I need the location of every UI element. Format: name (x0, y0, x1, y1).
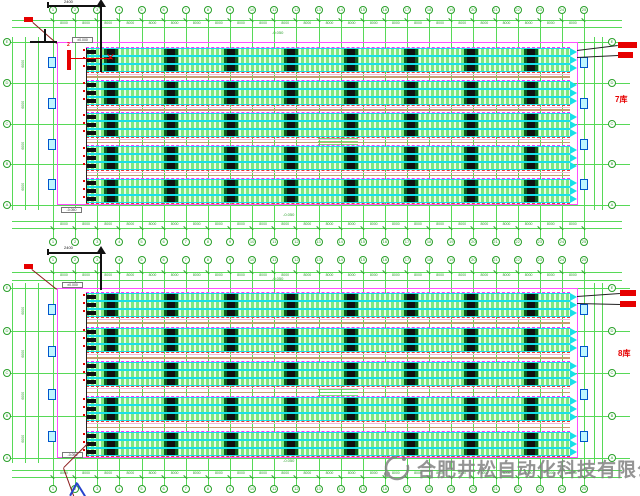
rack-cluster (467, 147, 475, 153)
rack-end-dot (83, 363, 85, 365)
rack-end-dot (83, 163, 85, 165)
rack-cluster (347, 310, 355, 316)
grid-col-bubble: 13 (315, 256, 323, 264)
grid-col-bubble: 16 (381, 256, 389, 264)
dim-tick (592, 83, 606, 84)
rack-cluster (287, 337, 295, 343)
grid-col-bubble: 10 (248, 256, 256, 264)
grid-col-bubble: 24 (558, 256, 566, 264)
dim-tick (592, 288, 606, 289)
rack-cluster (227, 302, 235, 308)
rack-end-plate (87, 442, 96, 446)
door-opening (580, 304, 588, 315)
dim-tick (12, 458, 42, 459)
rack-end-guide (570, 448, 577, 456)
dim-bay-label: 8000 (254, 22, 272, 26)
rack-cluster (527, 196, 535, 202)
rack-cluster (407, 406, 415, 412)
corner-mark (44, 29, 46, 42)
dim-bay-label: 8000 (188, 274, 206, 278)
rack-cluster (527, 414, 535, 420)
rack-dash-magenta (86, 112, 570, 113)
grid-col-bubble: 22 (514, 6, 522, 14)
dim-bay-label: 8000 (210, 274, 228, 278)
dim-bay-label: 8000 (409, 223, 427, 227)
dim-tick (12, 205, 42, 206)
dim-bay-label: 8000 (564, 274, 582, 278)
grid-row-bubble: B (3, 412, 11, 420)
rack-cluster (107, 449, 115, 455)
rack-cluster (527, 180, 535, 186)
dim-tick (12, 164, 42, 165)
dim-bay-label: 8000 (99, 223, 117, 227)
rack-cluster (467, 82, 475, 88)
grid-col-bubble: 10 (248, 6, 256, 14)
dim-bay-label: 8000 (121, 274, 139, 278)
rack-cluster (227, 196, 235, 202)
rack-cluster (227, 98, 235, 104)
dim-bay-label: 8000 (188, 223, 206, 227)
dim-tick (12, 124, 42, 125)
grid-row-bubble: C (3, 369, 11, 377)
rack-cluster (407, 371, 415, 377)
grid-col-bubble: 23 (536, 6, 544, 14)
grid-col-bubble: 15 (359, 6, 367, 14)
rack-cluster (287, 180, 295, 186)
rack-cluster (407, 441, 415, 447)
grid-row-bubble: A (3, 201, 11, 209)
rack-cluster (167, 302, 175, 308)
callout-red-block (618, 52, 633, 58)
dim-bay-label: 8000 (144, 22, 162, 26)
rack-cluster (287, 49, 295, 55)
rack-end-guide (570, 362, 577, 370)
grid-col-bubble: 4 (115, 256, 123, 264)
rack-cluster (227, 441, 235, 447)
rack-cluster (227, 337, 235, 343)
dim-bay-label: 8000 (298, 22, 316, 26)
building-wall (57, 42, 578, 205)
rack-cluster (287, 65, 295, 71)
rack-cluster (227, 363, 235, 369)
rack-cluster (467, 196, 475, 202)
grid-col-bubble: 5 (138, 485, 146, 493)
grid-col-bubble: 21 (492, 6, 500, 14)
grid-col-bubble: 14 (337, 238, 345, 246)
red-section-label: 2 (67, 43, 70, 48)
rack-cluster (467, 310, 475, 316)
rack-cluster (527, 449, 535, 455)
grid-col-bubble: 1 (49, 485, 57, 493)
rack-end-plate (87, 364, 96, 368)
rack-end-dot (83, 379, 85, 381)
rack-cluster (167, 49, 175, 55)
rack-end-dot (83, 147, 85, 149)
door-opening (48, 431, 56, 442)
dim-bay-label: 8000 (144, 274, 162, 278)
grid-col-bubble: 3 (93, 485, 101, 493)
dim-side-label: 6000 (22, 435, 26, 443)
rack-end-guide (570, 121, 577, 129)
rack-cluster (467, 180, 475, 186)
rack-cluster (527, 371, 535, 377)
rack-cluster (407, 196, 415, 202)
rack-cluster (287, 345, 295, 351)
rack-cluster (167, 65, 175, 71)
door-opening (580, 98, 588, 109)
rack-end-guide (570, 64, 577, 72)
grid-col-bubble: 22 (514, 485, 522, 493)
rack-cluster (347, 98, 355, 104)
dim-side-label: 6000 (22, 307, 26, 315)
grid-col-bubble: 17 (403, 485, 411, 493)
rack-end-guide (570, 328, 577, 336)
rack-cluster (167, 329, 175, 335)
rack-cluster (107, 406, 115, 412)
dim-bay-label: 8000 (321, 274, 339, 278)
rack-cluster (107, 345, 115, 351)
rack-cluster (167, 414, 175, 420)
dim-bay-label: 8000 (343, 472, 361, 476)
grid-col-bubble: 17 (403, 6, 411, 14)
rack-cluster (407, 188, 415, 194)
rack-cluster (167, 310, 175, 316)
dim-tick (12, 288, 42, 289)
rack-end-dot (83, 180, 85, 182)
grid-col-bubble: 8 (204, 485, 212, 493)
rack-cluster (167, 180, 175, 186)
dim-bay-label: 8000 (498, 274, 516, 278)
rack-dash-magenta (86, 396, 570, 397)
rack-cluster (167, 345, 175, 351)
rack-left-frame (86, 293, 87, 456)
rack-cluster (467, 345, 475, 351)
rack-cluster (527, 49, 535, 55)
rack-cluster (407, 82, 415, 88)
dim-bay-label: 8000 (298, 274, 316, 278)
rack-cluster (527, 122, 535, 128)
rack-cluster (407, 130, 415, 136)
dim-tick (592, 458, 606, 459)
rack-cluster (407, 433, 415, 439)
dim-tick (592, 124, 606, 125)
rack-end-plate (87, 311, 96, 315)
rack-end-dot (83, 398, 85, 400)
grid-col-bubble: 8 (204, 6, 212, 14)
rack-cluster (467, 433, 475, 439)
grid-col-bubble: 4 (115, 485, 123, 493)
callout-red-block (618, 42, 637, 48)
grid-col-bubble: 18 (425, 6, 433, 14)
dim-tick (592, 205, 606, 206)
rack-dash-magenta (86, 47, 570, 48)
rack-cluster (467, 49, 475, 55)
door-opening (580, 57, 588, 68)
grid-row-bubble: E (3, 38, 11, 46)
rack-end-dot (83, 441, 85, 443)
grid-col-bubble: 4 (115, 6, 123, 14)
door-opening (580, 179, 588, 190)
callout-red-block (620, 301, 636, 307)
rack-cluster (347, 130, 355, 136)
rack-end-dot (83, 98, 85, 100)
rack-cluster (287, 310, 295, 316)
grid-col-bubble: 14 (337, 6, 345, 14)
rack-cluster (467, 114, 475, 120)
grid-col-bubble: 11 (270, 485, 278, 493)
rack-cluster (227, 163, 235, 169)
aisle-text-block (318, 387, 358, 396)
door-opening (580, 389, 588, 400)
grid-col-bubble: 25 (580, 256, 588, 264)
rack-cluster (107, 196, 115, 202)
rack-cluster (527, 398, 535, 404)
dim-bay-label: 8000 (365, 274, 383, 278)
dim-bay-label: 8000 (276, 22, 294, 26)
dim-bay-label: 8000 (343, 274, 361, 278)
rack-cluster (347, 433, 355, 439)
rack-cluster (227, 371, 235, 377)
section-bracket-dim: 2400 (64, 0, 73, 4)
dim-bay-label: 8000 (188, 472, 206, 476)
rack-cluster (287, 155, 295, 161)
grid-col-bubble: 18 (425, 485, 433, 493)
rack-end-dot (83, 90, 85, 92)
rack-cluster (527, 345, 535, 351)
rack-end-plate (87, 181, 96, 185)
rack-cluster (467, 449, 475, 455)
door-opening (48, 57, 56, 68)
rack-end-guide (570, 81, 577, 89)
dim-line (12, 27, 622, 28)
rack-cluster (227, 414, 235, 420)
rack-end-dot (83, 294, 85, 296)
rack-cluster (347, 180, 355, 186)
rack-cluster (287, 114, 295, 120)
grid-col-bubble: 23 (536, 256, 544, 264)
red-leader (71, 58, 112, 59)
rack-cluster (407, 122, 415, 128)
rack-cluster (527, 90, 535, 96)
rack-cluster (527, 302, 535, 308)
rack-cluster (467, 406, 475, 412)
elevation-box: ±0.000 (72, 37, 93, 43)
door-opening (48, 346, 56, 357)
rack-end-guide (570, 179, 577, 187)
rack-cluster (227, 310, 235, 316)
rack-cluster (167, 337, 175, 343)
dim-bay-label: 8000 (254, 274, 272, 278)
dim-bay-label: 8000 (453, 223, 471, 227)
grid-col-bubble: 10 (248, 238, 256, 246)
grid-col-bubble: 16 (381, 238, 389, 246)
rack-cluster (167, 122, 175, 128)
dim-bay-label: 8000 (409, 274, 427, 278)
dim-tick (592, 42, 606, 43)
dim-bay-label: 8000 (77, 274, 95, 278)
grid-col-bubble: 11 (270, 6, 278, 14)
rack-cluster (107, 122, 115, 128)
rack-cluster (287, 196, 295, 202)
grid-col-bubble: 21 (492, 485, 500, 493)
dim-bay-label: 8000 (55, 22, 73, 26)
dim-bay-label: 8000 (520, 22, 538, 26)
rack-end-dot (83, 406, 85, 408)
grid-col-bubble: 2 (71, 6, 79, 14)
rack-end-dot (83, 414, 85, 416)
rack-end-plate (87, 99, 96, 103)
rack-dash-magenta (86, 80, 570, 81)
rack-cluster (287, 294, 295, 300)
dim-bay-label: 8000 (387, 22, 405, 26)
rack-cluster (227, 433, 235, 439)
rack-cluster (167, 147, 175, 153)
grid-col-line (584, 264, 585, 486)
rack-cluster (107, 329, 115, 335)
grid-row-bubble: C (608, 369, 616, 377)
rack-cluster (287, 122, 295, 128)
dim-bay-label: 8000 (232, 274, 250, 278)
dim-bay-label: 8000 (298, 223, 316, 227)
warehouse-8-label: 8库 (618, 350, 630, 358)
rack-end-guide (570, 113, 577, 121)
dim-bay-label: 8000 (144, 223, 162, 227)
grid-col-bubble: 14 (337, 485, 345, 493)
door-opening (580, 431, 588, 442)
legend-red-block (24, 17, 33, 22)
grid-row-bubble: C (3, 120, 11, 128)
rack-cluster (467, 302, 475, 308)
dim-bay-label: 8000 (321, 472, 339, 476)
rack-cluster (227, 130, 235, 136)
door-opening (48, 98, 56, 109)
rack-cluster (107, 363, 115, 369)
rack-end-plate (87, 123, 96, 127)
rack-cluster (527, 114, 535, 120)
dim-bay-label: 8000 (453, 22, 471, 26)
rack-cluster (347, 449, 355, 455)
rack-cluster (107, 114, 115, 120)
dim-bay-label: 8000 (409, 22, 427, 26)
rack-dash-magenta (86, 145, 570, 146)
grid-col-bubble: 7 (182, 238, 190, 246)
dim-bay-label: 8000 (365, 472, 383, 476)
rack-cluster (287, 433, 295, 439)
rack-cluster (467, 163, 475, 169)
rack-end-plate (87, 91, 96, 95)
rack-cluster (107, 82, 115, 88)
rack-end-dot (83, 49, 85, 51)
rack-cluster (347, 337, 355, 343)
rack-cluster (167, 114, 175, 120)
dim-bay-label: 8000 (564, 22, 582, 26)
rack-end-guide (570, 162, 577, 170)
elevation-box: ±0.000 (62, 282, 83, 288)
dim-bay-label: 8000 (166, 472, 184, 476)
dim-bay-label: 8000 (564, 223, 582, 227)
rack-cluster (527, 294, 535, 300)
rack-cluster (527, 130, 535, 136)
rack-cluster (107, 188, 115, 194)
grid-col-bubble: 9 (226, 256, 234, 264)
dim-bay-label: 8000 (431, 22, 449, 26)
dim-bay-label: 8000 (564, 472, 582, 476)
dim-bay-label: 8000 (387, 223, 405, 227)
rack-end-dot (83, 345, 85, 347)
rack-cluster (527, 310, 535, 316)
section-bracket-tick (47, 249, 49, 255)
grid-col-bubble: 3 (93, 238, 101, 246)
grid-row-bubble: B (608, 412, 616, 420)
grid-col-bubble: 18 (425, 238, 433, 246)
rack-cluster (347, 90, 355, 96)
rack-cluster (287, 449, 295, 455)
rack-cluster (287, 147, 295, 153)
grid-row-bubble: C (608, 120, 616, 128)
rack-cluster (287, 363, 295, 369)
rack-cluster (167, 449, 175, 455)
rack-cluster (467, 379, 475, 385)
rack-cluster (287, 406, 295, 412)
rack-cluster (107, 398, 115, 404)
grid-col-bubble: 12 (292, 485, 300, 493)
rack-cluster (527, 379, 535, 385)
rack-cluster (227, 398, 235, 404)
rack-cluster (227, 180, 235, 186)
dim-bay-label: 8000 (321, 223, 339, 227)
rack-dash-red (86, 317, 570, 318)
rack-end-plate (87, 399, 96, 403)
dim-bay-label: 8000 (232, 22, 250, 26)
rack-end-guide (570, 344, 577, 352)
rack-end-plate (87, 156, 96, 160)
dim-bay-label: 8000 (520, 274, 538, 278)
grid-col-bubble: 13 (315, 238, 323, 246)
rack-cluster (527, 406, 535, 412)
rack-cluster (347, 196, 355, 202)
rack-cluster (527, 329, 535, 335)
grid-col-bubble: 6 (160, 485, 168, 493)
rack-cluster (227, 294, 235, 300)
rack-end-guide (570, 301, 577, 309)
rack-cluster (107, 371, 115, 377)
rack-cluster (527, 98, 535, 104)
grid-col-bubble: 19 (447, 256, 455, 264)
rack-cluster (407, 414, 415, 420)
rack-cluster (407, 329, 415, 335)
grid-col-bubble: 12 (292, 256, 300, 264)
grid-col-bubble: 23 (536, 485, 544, 493)
door-opening (580, 139, 588, 150)
grid-col-bubble: 20 (469, 6, 477, 14)
dim-line (12, 280, 622, 281)
grid-row-bubble: B (608, 160, 616, 168)
dim-bay-label: 8000 (232, 472, 250, 476)
rack-cluster (527, 337, 535, 343)
rack-dash-red (86, 203, 570, 204)
grid-col-bubble: 24 (558, 238, 566, 246)
dim-bay-label: 8000 (166, 22, 184, 26)
dim-bay-label: 8000 (77, 472, 95, 476)
rack-cluster (287, 57, 295, 63)
rack-cluster (107, 147, 115, 153)
rack-cluster (407, 310, 415, 316)
rack-cluster (227, 329, 235, 335)
rack-cluster (287, 130, 295, 136)
rack-cluster (287, 90, 295, 96)
grid-col-bubble: 23 (536, 238, 544, 246)
dim-bay-label: 8000 (343, 22, 361, 26)
